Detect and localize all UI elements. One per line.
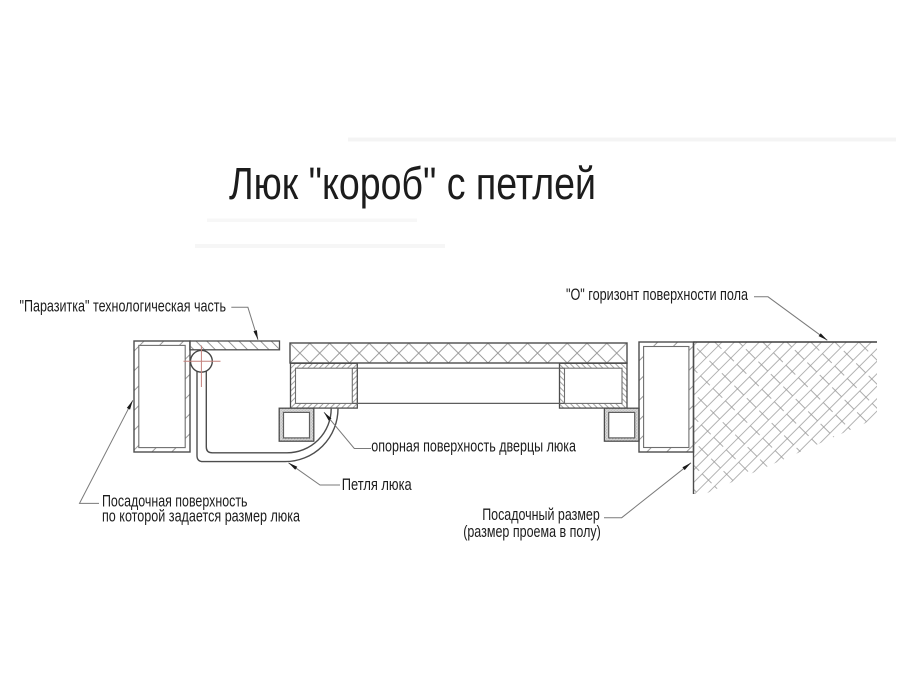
svg-text:"Паразитка" технологическая ча: "Паразитка" технологическая часть bbox=[20, 298, 227, 316]
svg-text:опорная поверхность дверцы люк: опорная поверхность дверцы люка bbox=[371, 438, 576, 456]
svg-text:"О" горизонт поверхности пола: "О" горизонт поверхности пола bbox=[566, 286, 749, 304]
svg-text:Петля люка: Петля люка bbox=[342, 476, 413, 494]
svg-text:по которой задается размер люк: по которой задается размер люка bbox=[102, 508, 301, 526]
svg-text:Посадочный размер: Посадочный размер bbox=[482, 506, 600, 524]
svg-text:(размер проема в полу): (размер проема в полу) bbox=[463, 523, 601, 541]
svg-text:Люк "короб" с петлей: Люк "короб" с петлей bbox=[229, 158, 596, 209]
